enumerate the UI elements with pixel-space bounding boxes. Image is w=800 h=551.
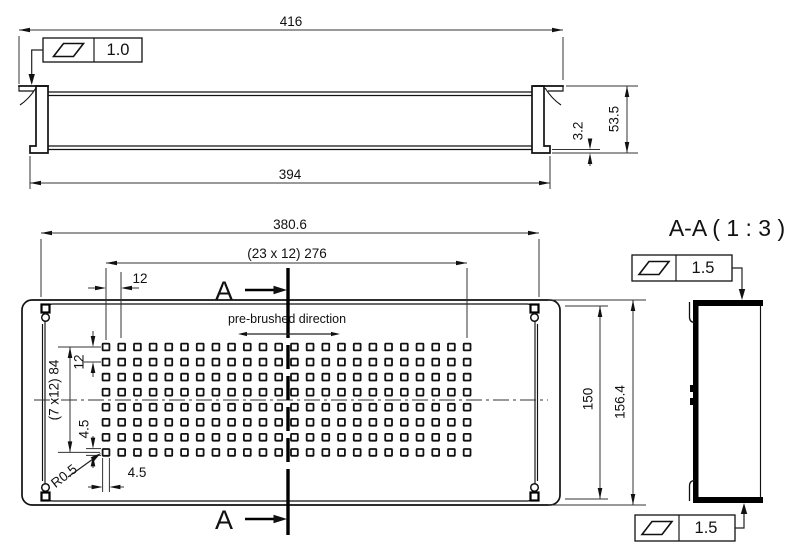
- square-hole: [150, 359, 157, 366]
- square-hole: [448, 389, 455, 396]
- square-hole: [244, 419, 251, 426]
- square-hole: [150, 419, 157, 426]
- outline-segment: [42, 305, 50, 313]
- square-hole: [322, 419, 329, 426]
- square-hole: [354, 419, 361, 426]
- arrowhead-icon: [598, 488, 603, 499]
- square-hole: [385, 449, 392, 456]
- square-hole: [103, 404, 110, 411]
- square-hole: [370, 419, 377, 426]
- arrowhead-icon: [91, 362, 96, 373]
- outline-segment: [30, 86, 48, 153]
- square-hole: [165, 359, 172, 366]
- square-hole: [370, 434, 377, 441]
- square-hole: [244, 449, 251, 456]
- dim-overall-height-side: 53.5: [566, 86, 638, 153]
- square-hole: [103, 449, 110, 456]
- square-hole: [181, 419, 188, 426]
- corner-clip-bottom-left: [42, 484, 50, 501]
- square-hole: [213, 359, 220, 366]
- square-hole: [385, 344, 392, 351]
- square-hole: [134, 359, 141, 366]
- square-hole: [464, 344, 471, 351]
- square-hole: [322, 344, 329, 351]
- square-hole: [307, 374, 314, 381]
- leader-arrow-icon: [741, 503, 747, 514]
- square-hole: [181, 434, 188, 441]
- square-hole: [432, 449, 439, 456]
- section-title: A-A ( 1 : 3 ): [669, 215, 785, 241]
- square-hole: [181, 359, 188, 366]
- square-hole: [165, 344, 172, 351]
- square-hole: [134, 344, 141, 351]
- square-hole: [370, 389, 377, 396]
- square-hole: [464, 419, 471, 426]
- dim-text-4.5v: 4.5: [77, 420, 92, 439]
- flatness-bottom-value: 1.5: [695, 519, 718, 537]
- dim-text-276: (23 x 12) 276: [247, 246, 327, 261]
- square-hole: [354, 344, 361, 351]
- arrowhead-icon: [30, 181, 41, 186]
- square-hole: [448, 434, 455, 441]
- arrowhead-icon: [19, 28, 30, 33]
- square-hole: [244, 344, 251, 351]
- square-hole: [307, 389, 314, 396]
- arrowhead-icon: [588, 153, 593, 164]
- square-hole: [432, 419, 439, 426]
- outline-segment: [632, 255, 732, 281]
- flatness-top-value: 1.5: [692, 259, 715, 277]
- section-arrow-icon: [274, 286, 288, 295]
- side-view-part-outline: [19, 86, 563, 153]
- square-hole: [260, 434, 267, 441]
- square-hole: [291, 434, 298, 441]
- square-hole: [464, 449, 471, 456]
- square-hole: [322, 359, 329, 366]
- square-hole: [228, 389, 235, 396]
- outline-segment: [690, 398, 693, 405]
- square-hole: [448, 344, 455, 351]
- square-hole: [385, 359, 392, 366]
- square-hole: [417, 374, 424, 381]
- brush-note-text: pre-brushed direction: [228, 312, 346, 326]
- square-hole: [338, 389, 345, 396]
- dim-hole-height: 4.5: [77, 420, 102, 468]
- square-hole: [291, 419, 298, 426]
- dim-text-156.4: 156.4: [613, 385, 628, 419]
- section-arrow-icon: [274, 515, 288, 524]
- square-hole: [322, 374, 329, 381]
- arrowhead-icon: [456, 261, 467, 266]
- section-label-top: A: [215, 276, 233, 306]
- arrowhead-icon: [625, 86, 630, 97]
- square-hole: [322, 404, 329, 411]
- square-hole: [197, 404, 204, 411]
- dim-text-3.2: 3.2: [571, 122, 586, 141]
- flatness-frame-section-top: 1.5: [632, 255, 745, 300]
- square-hole: [150, 344, 157, 351]
- square-hole: [228, 419, 235, 426]
- leader-arrow-icon: [29, 74, 35, 85]
- section-cutting-plane: A A: [215, 268, 288, 535]
- square-hole: [307, 359, 314, 366]
- square-hole: [150, 389, 157, 396]
- square-hole: [260, 374, 267, 381]
- section-view: A-A ( 1 : 3 ) 1.5 1.5: [632, 215, 785, 541]
- arrowhead-icon: [106, 261, 117, 266]
- square-hole: [150, 404, 157, 411]
- outline-segment: [42, 314, 50, 322]
- square-hole: [181, 449, 188, 456]
- square-hole: [291, 389, 298, 396]
- square-hole: [197, 449, 204, 456]
- outline-segment: [532, 86, 550, 153]
- square-hole: [165, 419, 172, 426]
- square-hole: [244, 404, 251, 411]
- square-hole: [401, 449, 408, 456]
- square-hole: [228, 434, 235, 441]
- square-hole: [417, 404, 424, 411]
- dim-hole-width: 4.5: [88, 458, 146, 492]
- square-hole: [354, 359, 361, 366]
- arrowhead-icon: [588, 139, 593, 150]
- square-hole: [134, 404, 141, 411]
- square-hole: [401, 359, 408, 366]
- square-hole: [448, 404, 455, 411]
- square-hole: [385, 404, 392, 411]
- square-hole: [417, 419, 424, 426]
- square-hole: [275, 434, 282, 441]
- square-hole: [197, 374, 204, 381]
- square-hole: [118, 419, 125, 426]
- square-hole: [197, 344, 204, 351]
- square-hole: [275, 419, 282, 426]
- square-hole: [181, 374, 188, 381]
- square-hole: [228, 449, 235, 456]
- square-hole: [197, 419, 204, 426]
- leader-arrow-icon: [739, 289, 745, 300]
- outline-segment: [531, 305, 539, 313]
- square-hole: [322, 434, 329, 441]
- corner-clip-top-left: [42, 305, 50, 322]
- square-hole: [165, 389, 172, 396]
- square-hole: [401, 419, 408, 426]
- square-hole: [197, 434, 204, 441]
- square-hole: [417, 359, 424, 366]
- square-hole: [260, 449, 267, 456]
- square-hole: [118, 374, 125, 381]
- square-hole: [338, 434, 345, 441]
- square-hole: [213, 344, 220, 351]
- square-hole: [103, 344, 110, 351]
- dim-inner-width: 394: [30, 156, 550, 189]
- square-hole: [354, 449, 361, 456]
- square-hole: [464, 359, 471, 366]
- square-hole: [118, 359, 125, 366]
- arrowhead-icon: [631, 300, 636, 311]
- square-hole: [370, 404, 377, 411]
- square-hole: [338, 419, 345, 426]
- square-hole: [307, 344, 314, 351]
- square-hole: [401, 404, 408, 411]
- square-hole: [244, 434, 251, 441]
- arrowhead-icon: [41, 231, 52, 236]
- square-hole: [354, 374, 361, 381]
- square-hole: [228, 404, 235, 411]
- square-hole: [103, 359, 110, 366]
- dim-text-150: 150: [581, 388, 596, 411]
- outline-segment: [531, 493, 539, 501]
- square-hole: [307, 419, 314, 426]
- technical-drawing: 416 1.0: [0, 0, 800, 551]
- dim-text-84: (7 x12) 84: [47, 359, 62, 420]
- square-hole: [354, 434, 361, 441]
- square-hole: [401, 389, 408, 396]
- square-hole: [354, 389, 361, 396]
- arrowhead-icon: [95, 286, 106, 291]
- square-hole: [165, 434, 172, 441]
- front-view: A A pre-brushed direction 380.6: [22, 217, 646, 535]
- square-hole: [448, 374, 455, 381]
- square-hole: [385, 434, 392, 441]
- square-hole: [213, 374, 220, 381]
- square-hole: [260, 404, 267, 411]
- corner-clip-top-right: [531, 305, 539, 322]
- square-hole: [150, 434, 157, 441]
- drawing-canvas: 416 1.0: [0, 0, 800, 551]
- square-hole: [134, 449, 141, 456]
- square-hole: [291, 404, 298, 411]
- square-hole: [338, 374, 345, 381]
- arrowhead-icon: [598, 306, 603, 317]
- square-hole: [275, 404, 282, 411]
- square-hole: [417, 344, 424, 351]
- outline-segment: [42, 493, 50, 501]
- square-hole: [307, 434, 314, 441]
- square-hole: [150, 374, 157, 381]
- dim-text-4.5h: 4.5: [128, 465, 147, 480]
- square-hole: [260, 359, 267, 366]
- square-hole: [448, 359, 455, 366]
- dim-text-12h: 12: [132, 271, 147, 286]
- square-hole: [118, 434, 125, 441]
- square-hole: [165, 449, 172, 456]
- dim-row-pitch: 12: [72, 331, 102, 377]
- section-label-bottom: A: [215, 505, 233, 535]
- dim-text-416: 416: [280, 14, 303, 29]
- double-arrow-icon: [238, 332, 247, 336]
- square-hole: [432, 374, 439, 381]
- square-hole: [385, 419, 392, 426]
- square-hole: [291, 449, 298, 456]
- square-hole: [291, 374, 298, 381]
- dim-text-r0.5: R0.5: [48, 461, 80, 490]
- square-hole: [432, 389, 439, 396]
- square-hole: [401, 344, 408, 351]
- dim-text-394: 394: [279, 167, 302, 182]
- square-hole: [401, 434, 408, 441]
- square-hole: [417, 434, 424, 441]
- outline-segment: [693, 300, 763, 306]
- outline-segment: [42, 484, 50, 492]
- dim-inner-height: 150: [565, 306, 608, 499]
- square-hole: [228, 374, 235, 381]
- square-hole: [228, 359, 235, 366]
- square-hole: [197, 389, 204, 396]
- double-arrow-icon: [331, 332, 340, 336]
- square-hole: [181, 344, 188, 351]
- dim-text-53.5: 53.5: [607, 106, 622, 132]
- square-hole: [385, 374, 392, 381]
- square-hole: [165, 404, 172, 411]
- square-hole: [354, 404, 361, 411]
- square-hole: [213, 404, 220, 411]
- flatness-frame-section-bottom: 1.5: [635, 503, 747, 541]
- square-hole: [197, 359, 204, 366]
- square-hole: [213, 419, 220, 426]
- square-hole: [338, 404, 345, 411]
- square-hole: [213, 434, 220, 441]
- square-hole: [291, 344, 298, 351]
- square-hole: [370, 359, 377, 366]
- dim-text-380.6: 380.6: [273, 217, 307, 232]
- dim-overall-height-front: 156.4: [548, 300, 646, 505]
- section-part-outline: [690, 300, 764, 503]
- square-hole: [260, 389, 267, 396]
- square-hole: [338, 344, 345, 351]
- square-hole: [244, 374, 251, 381]
- square-hole: [134, 434, 141, 441]
- side-view: 416 1.0: [19, 14, 638, 189]
- square-hole: [338, 449, 345, 456]
- square-hole: [134, 419, 141, 426]
- arrowhead-icon: [68, 441, 73, 452]
- square-hole: [291, 359, 298, 366]
- square-hole: [228, 344, 235, 351]
- square-hole: [103, 419, 110, 426]
- square-hole: [181, 404, 188, 411]
- square-hole: [118, 389, 125, 396]
- square-hole: [338, 359, 345, 366]
- arrowhead-icon: [528, 231, 539, 236]
- square-hole: [464, 404, 471, 411]
- square-hole: [134, 389, 141, 396]
- outline-segment: [531, 314, 539, 322]
- square-hole: [448, 419, 455, 426]
- square-hole: [244, 389, 251, 396]
- square-hole: [417, 449, 424, 456]
- arrowhead-icon: [91, 336, 96, 347]
- square-hole: [464, 389, 471, 396]
- square-hole: [432, 344, 439, 351]
- square-hole: [213, 389, 220, 396]
- square-hole: [464, 374, 471, 381]
- square-hole: [401, 374, 408, 381]
- outline-segment: [693, 300, 699, 503]
- arrowhead-icon: [121, 286, 132, 291]
- flatness-frame-top-view: 1.0: [29, 38, 143, 85]
- square-hole: [432, 359, 439, 366]
- square-hole: [150, 449, 157, 456]
- flatness-value: 1.0: [107, 41, 130, 59]
- square-hole: [448, 449, 455, 456]
- square-hole: [213, 449, 220, 456]
- square-hole: [307, 449, 314, 456]
- square-hole: [385, 389, 392, 396]
- square-hole: [370, 344, 377, 351]
- outline-segment: [531, 484, 539, 492]
- outline-segment: [635, 515, 735, 541]
- square-hole: [244, 359, 251, 366]
- outline-segment: [690, 385, 693, 392]
- square-hole: [260, 419, 267, 426]
- square-hole: [275, 359, 282, 366]
- square-hole: [118, 344, 125, 351]
- square-hole: [307, 404, 314, 411]
- square-hole: [322, 389, 329, 396]
- square-hole: [275, 449, 282, 456]
- square-hole: [103, 389, 110, 396]
- square-hole: [370, 374, 377, 381]
- square-hole: [464, 434, 471, 441]
- square-hole: [322, 449, 329, 456]
- arrowhead-icon: [92, 485, 103, 490]
- square-hole: [417, 389, 424, 396]
- square-hole: [118, 449, 125, 456]
- arrowhead-icon: [109, 485, 120, 490]
- arrowhead-icon: [552, 28, 563, 33]
- square-hole: [103, 374, 110, 381]
- arrowhead-icon: [539, 181, 550, 186]
- dim-text-12v: 12: [72, 354, 87, 369]
- square-hole: [275, 344, 282, 351]
- square-hole: [432, 434, 439, 441]
- square-hole: [181, 389, 188, 396]
- square-hole: [275, 389, 282, 396]
- square-hole: [432, 404, 439, 411]
- square-hole: [370, 449, 377, 456]
- corner-clip-bottom-right: [531, 484, 539, 501]
- square-hole: [103, 434, 110, 441]
- arrowhead-icon: [631, 494, 636, 505]
- square-hole: [118, 404, 125, 411]
- square-hole: [165, 374, 172, 381]
- outline-segment: [693, 497, 763, 503]
- arrowhead-icon: [625, 142, 630, 153]
- square-hole: [260, 344, 267, 351]
- square-hole: [275, 374, 282, 381]
- square-hole: [134, 374, 141, 381]
